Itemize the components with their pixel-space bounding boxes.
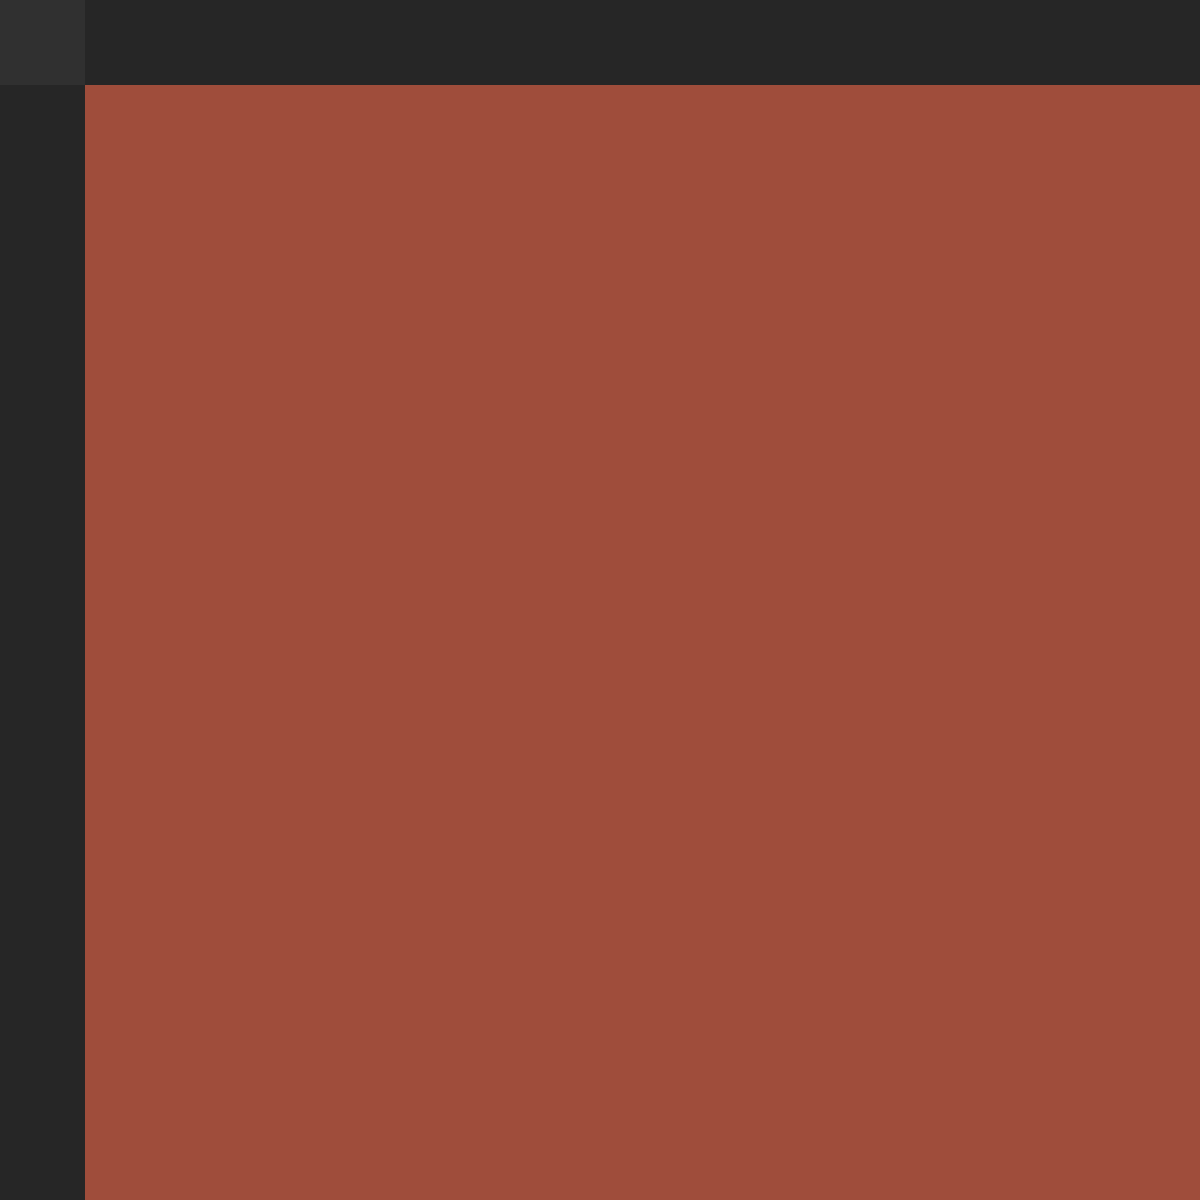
ruler-corner	[0, 0, 85, 85]
artwork[interactable]	[85, 85, 1200, 1200]
fabric-preview-page	[0, 0, 1200, 1200]
ruler-left	[0, 85, 85, 1200]
ruler-top	[85, 0, 1200, 85]
